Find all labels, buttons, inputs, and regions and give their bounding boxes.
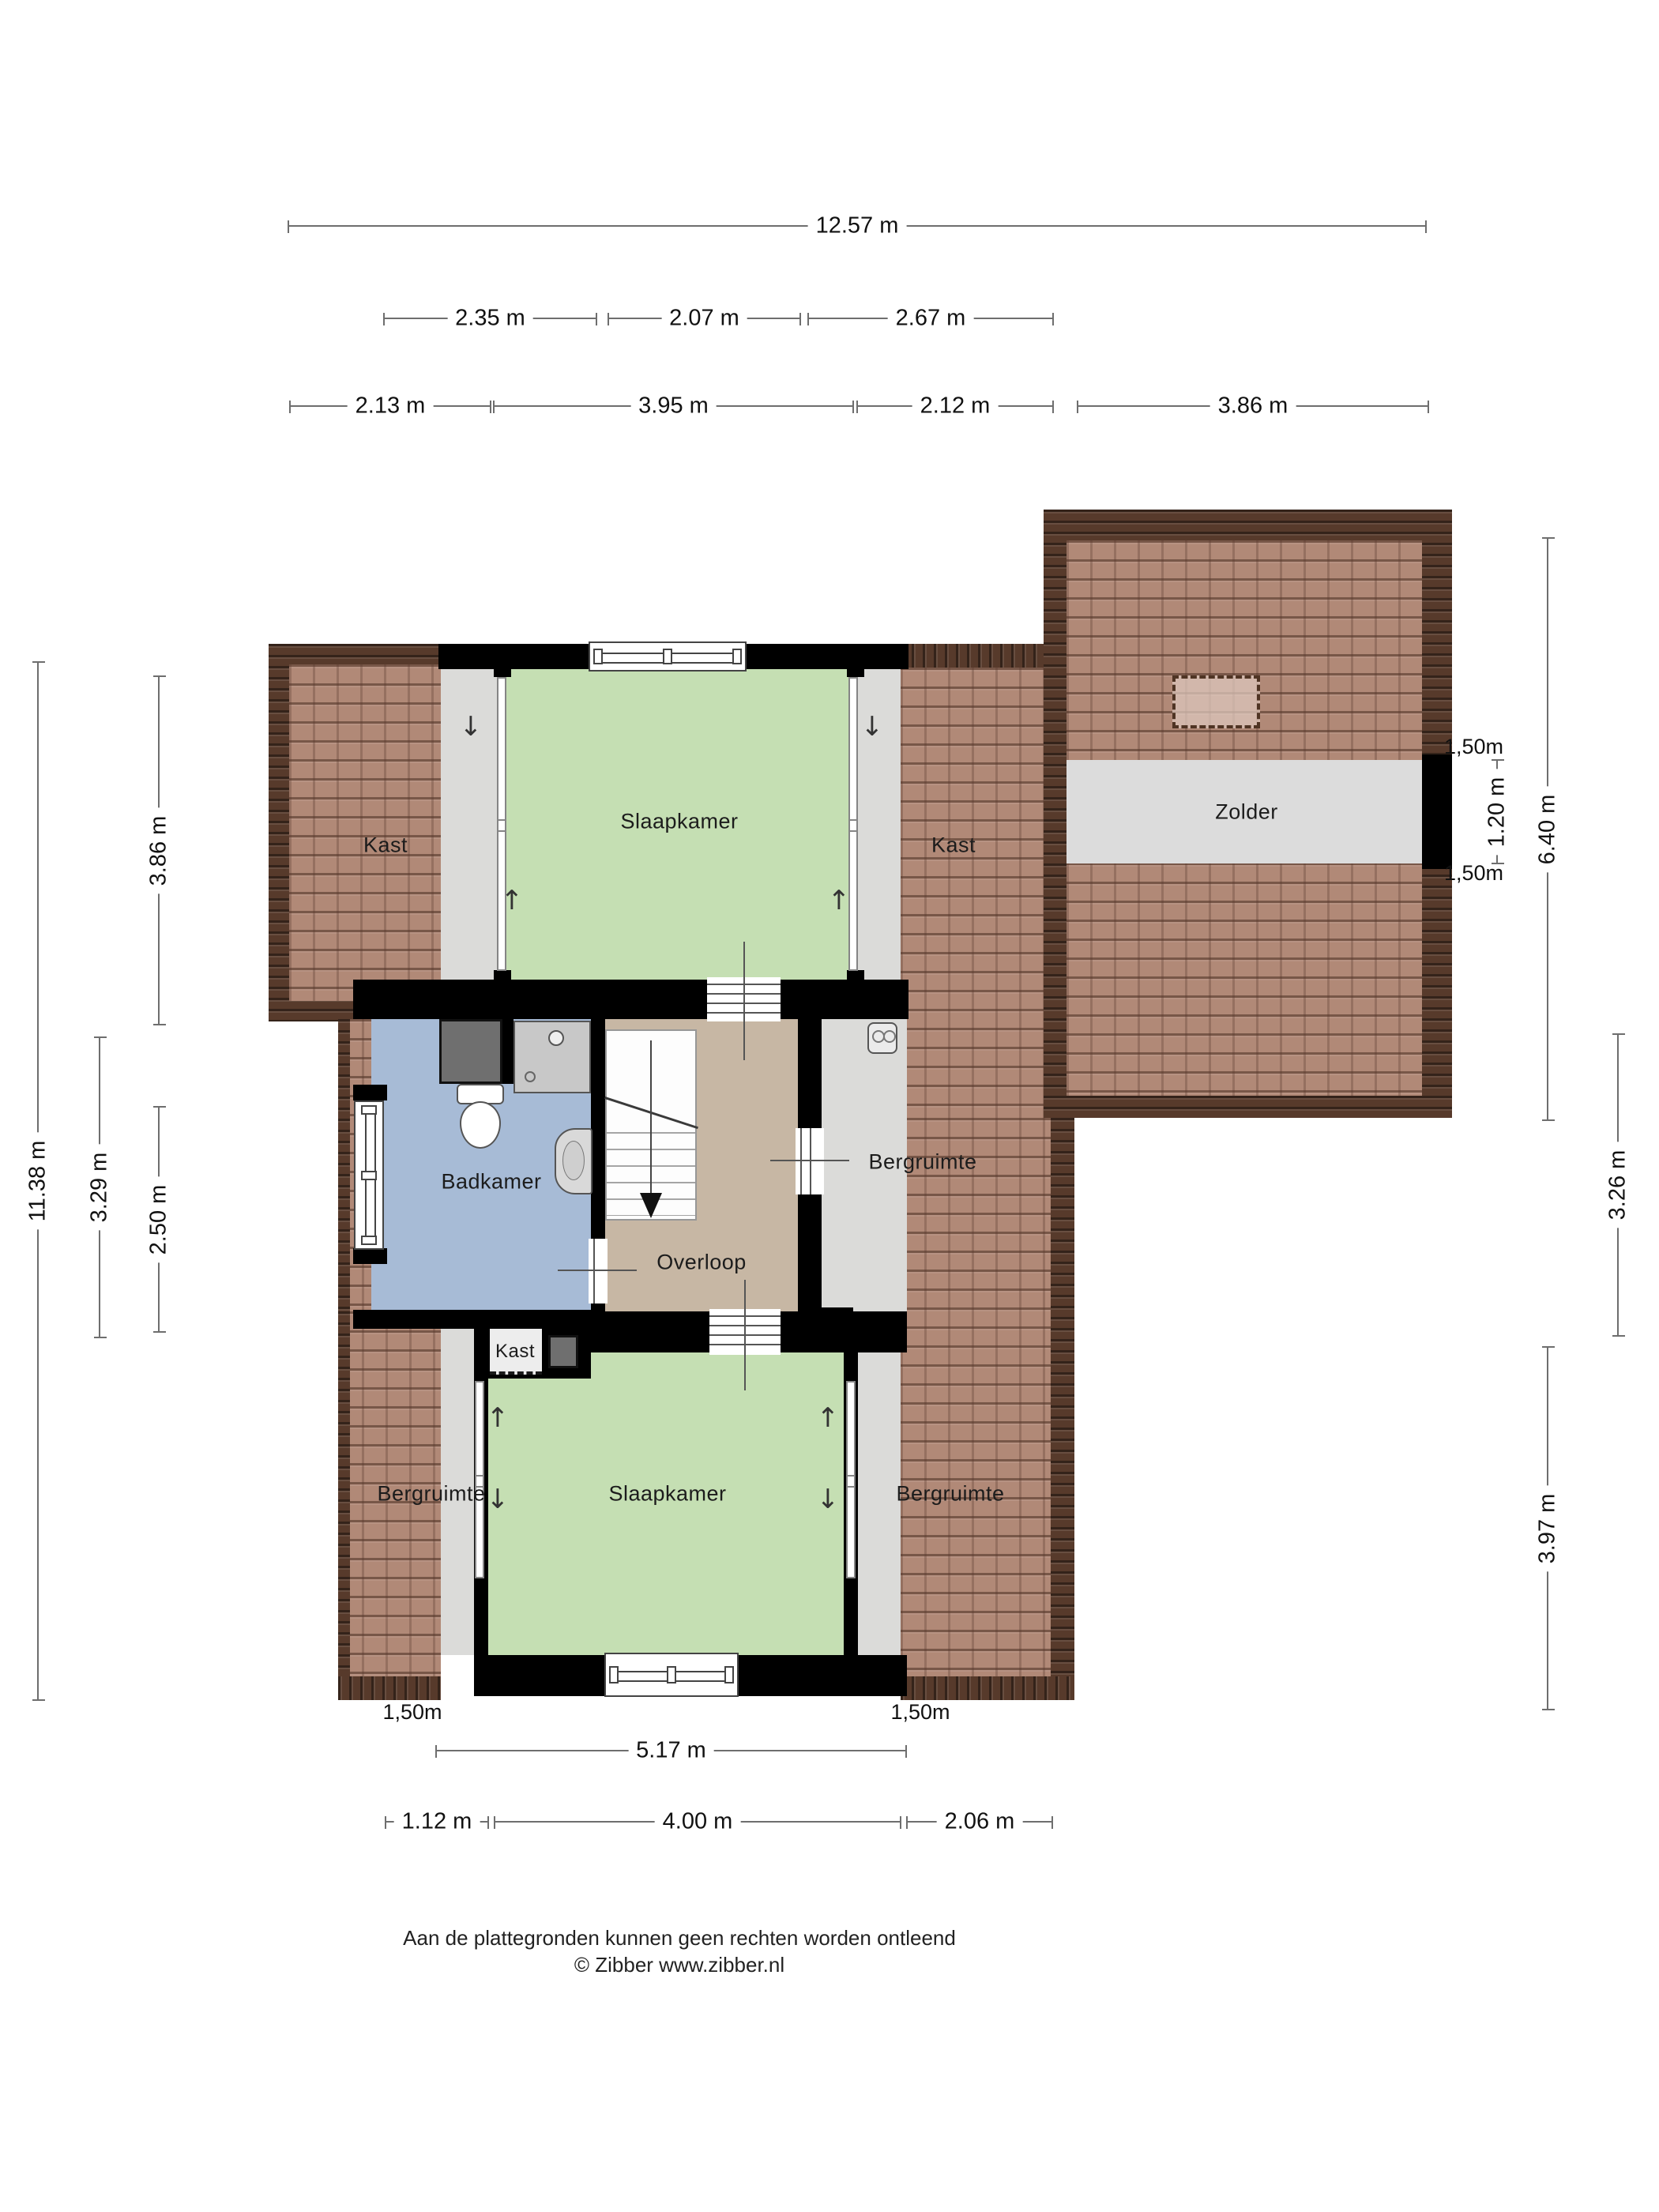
shower-head-icon — [548, 1030, 564, 1046]
duct-box — [439, 1019, 502, 1084]
roof-ridge-bottom-left-edge — [338, 1311, 350, 1676]
door-centerline — [743, 942, 745, 1060]
sliding-door-kast-right — [848, 677, 858, 971]
dim-bottom-517: 5.17 m — [436, 1750, 906, 1751]
window-badkamer-icon — [354, 1100, 384, 1250]
roof-ridge-left-mid — [338, 1019, 350, 1311]
window-mullion — [361, 1171, 377, 1180]
ventilation-unit-icon — [867, 1022, 897, 1054]
dim-left-329: 3.29 m — [99, 1037, 100, 1337]
stair-down-arrow-icon — [640, 1193, 662, 1218]
label-bergruimte-bottom-left: Bergruimte — [377, 1482, 485, 1507]
label-bergruimte-mid: Bergruimte — [868, 1150, 976, 1175]
label-zolder: Zolder — [1215, 800, 1278, 825]
label-kast-small: Kast — [495, 1341, 535, 1363]
dim-label: 2.13 m — [348, 393, 434, 419]
window-mullion — [663, 649, 672, 664]
roof-right-column — [901, 1118, 1051, 1676]
arrow-up-icon: ↑ — [817, 1402, 840, 1434]
sink-basin — [562, 1141, 585, 1180]
duct-box-small — [548, 1335, 578, 1368]
room-bergruimte-bottom-right — [853, 1327, 901, 1655]
arrow-up-icon: ↑ — [828, 885, 851, 916]
dim-right-120: 1.20 m — [1496, 760, 1498, 863]
dim-top-row3-3: 2.12 m — [857, 405, 1053, 407]
dim-top-row2-2: 2.07 m — [608, 318, 800, 319]
wall-stub-closet-2 — [494, 970, 511, 980]
dim-label: 3.95 m — [630, 393, 717, 419]
dim-label: 3.86 m — [146, 807, 172, 893]
sliding-door-break — [848, 819, 858, 832]
label-150-bottom-right: 1,50m — [890, 1700, 950, 1725]
dim-label: 1.20 m — [1484, 769, 1510, 855]
label-150-bottom-left: 1,50m — [382, 1700, 442, 1725]
dim-label: 11.38 m — [25, 1133, 51, 1230]
window-mullion — [361, 1105, 377, 1115]
dim-left-total: 11.38 m — [37, 662, 39, 1700]
dim-top-row3-1: 2.13 m — [290, 405, 491, 407]
window-mullion — [667, 1666, 676, 1683]
door-centerline — [770, 1160, 849, 1161]
dim-label: 2.12 m — [912, 393, 999, 419]
dim-label: 4.00 m — [655, 1809, 741, 1835]
arrow-down-icon: ↓ — [861, 711, 884, 743]
wall-stub-closet-4 — [847, 970, 864, 980]
sliding-door-bottom-left — [475, 1381, 484, 1578]
wall-topband-bottom — [353, 980, 908, 1019]
wall-stub-closet-1 — [494, 668, 511, 677]
label-kast-left: Kast — [363, 833, 408, 858]
sink-icon — [555, 1128, 592, 1194]
dim-label: 2.35 m — [447, 306, 533, 332]
arrow-down-icon: ↓ — [487, 1484, 510, 1515]
wall-stub-gray-left — [441, 1311, 474, 1329]
roof-ridge-right-edge — [1051, 1118, 1074, 1698]
door-badkamer — [589, 1239, 608, 1303]
window-mullion — [593, 649, 603, 664]
disclaimer-text: Aan de plattegronden kunnen geen rechten… — [403, 1926, 956, 1951]
label-slaapkamer-bottom: Slaapkamer — [608, 1482, 726, 1507]
dim-top-row2-1: 2.35 m — [384, 318, 596, 319]
arrow-down-icon: ↓ — [817, 1484, 840, 1515]
window-top-icon — [589, 641, 747, 671]
window-mullion — [361, 1236, 377, 1245]
dim-left-250: 2.50 m — [158, 1107, 160, 1332]
floorplan-canvas: ↓ ↑ ↓ ↑ ↑ ↓ ↑ ↓ Kast Slaapkamer Kast Zol… — [0, 0, 1659, 2212]
roof-ridge-top-right — [901, 644, 1044, 668]
dim-label: 2.07 m — [661, 306, 747, 332]
sliding-door-kast-left — [497, 677, 506, 971]
dim-bottom-400: 4.00 m — [495, 1821, 901, 1823]
window-mullion — [609, 1666, 619, 1683]
label-slaapkamer-top: Slaapkamer — [620, 810, 738, 834]
dim-right-397: 3.97 m — [1547, 1347, 1548, 1710]
door-centerline — [558, 1270, 637, 1271]
label-overloop: Overloop — [656, 1251, 747, 1275]
shower-drain-icon — [525, 1071, 536, 1082]
dim-top-total: 12.57 m — [288, 225, 1426, 227]
dim-top-row3-4: 3.86 m — [1078, 405, 1428, 407]
door-leaf — [593, 1239, 603, 1303]
dim-label: 3.97 m — [1535, 1485, 1561, 1571]
dim-bottom-112: 1.12 m — [386, 1821, 488, 1823]
door-centerline — [744, 1280, 746, 1390]
dim-bottom-206: 2.06 m — [907, 1821, 1052, 1823]
dim-label: 3.29 m — [87, 1145, 113, 1231]
staircase — [605, 1029, 697, 1221]
dim-top-row2-3: 2.67 m — [808, 318, 1053, 319]
dim-label: 3.26 m — [1605, 1142, 1631, 1228]
skylight-icon — [1172, 675, 1260, 728]
dim-label: 2.50 m — [146, 1176, 172, 1262]
arrow-up-icon: ↑ — [487, 1402, 510, 1434]
sliding-door-break — [497, 819, 506, 832]
wall-stub-darkbox-right — [502, 1019, 513, 1084]
sliding-door-break — [846, 1475, 856, 1488]
wall-stub-below-window — [353, 1248, 387, 1264]
dim-label: 1.12 m — [394, 1809, 480, 1835]
roof-kast-right — [901, 668, 1044, 1118]
arrow-down-icon: ↓ — [460, 711, 483, 743]
label-badkamer: Badkamer — [441, 1170, 541, 1194]
dim-label: 2.06 m — [937, 1809, 1023, 1835]
door-leaf — [800, 1128, 819, 1194]
stair-walkline — [650, 1040, 652, 1195]
label-bergruimte-bottom-right: Bergruimte — [896, 1482, 1004, 1507]
dim-left-386: 3.86 m — [158, 676, 160, 1025]
window-bottom-icon — [604, 1653, 739, 1697]
roof-ridge-right-bottom — [901, 1676, 1074, 1700]
vent-circle — [883, 1030, 896, 1043]
dim-top-row3-2: 3.95 m — [494, 405, 853, 407]
window-mullion — [724, 1666, 734, 1683]
arrow-up-icon: ↑ — [501, 885, 524, 916]
copyright-text: © Zibber www.zibber.nl — [574, 1953, 784, 1977]
roof-ridge-bottom-left-bottom — [338, 1676, 441, 1700]
dim-right-326: 3.26 m — [1617, 1034, 1619, 1336]
dim-label: 2.67 m — [888, 306, 974, 332]
dim-label: 12.57 m — [808, 213, 907, 239]
label-150-top: 1,50m — [1444, 735, 1503, 759]
wall-stub-closet-3 — [847, 668, 864, 677]
wall-stub-above-window — [353, 1085, 387, 1100]
label-kast-right: Kast — [931, 833, 976, 858]
dim-right-640: 6.40 m — [1547, 538, 1548, 1120]
wall-stub-bergruimte — [798, 1307, 853, 1335]
dim-label: 3.86 m — [1210, 393, 1296, 419]
wall-zolder-right — [1422, 754, 1452, 869]
sliding-door-bottom-right — [846, 1381, 856, 1578]
door-bergruimte-mid — [796, 1128, 824, 1194]
shower-icon — [513, 1021, 591, 1093]
window-mullion — [732, 649, 742, 664]
dim-label: 5.17 m — [628, 1738, 714, 1764]
label-150-bottom: 1,50m — [1444, 861, 1503, 886]
dim-label: 6.40 m — [1535, 786, 1561, 872]
